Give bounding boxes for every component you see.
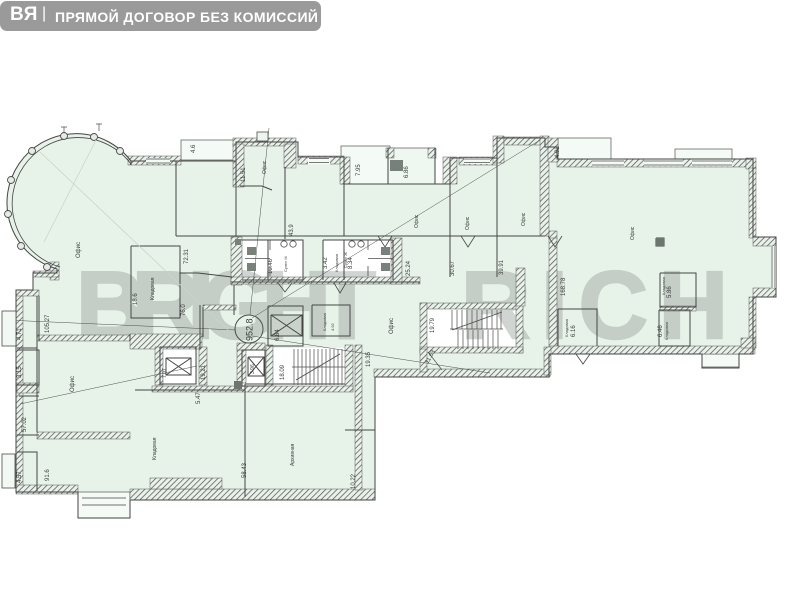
svg-text:25.24: 25.24 [406, 260, 412, 276]
svg-text:19.79: 19.79 [430, 317, 436, 333]
svg-text:4.57: 4.57 [17, 471, 23, 483]
svg-text:Кладовая: Кладовая [661, 277, 666, 295]
svg-text:7.07: 7.07 [162, 368, 168, 378]
svg-text:8.34: 8.34 [348, 257, 354, 269]
svg-text:Кладовая: Кладовая [664, 322, 669, 340]
svg-text:5.47: 5.47 [196, 392, 202, 404]
svg-text:Офис: Офис [389, 318, 395, 334]
svg-text:Офис: Офис [414, 214, 420, 228]
svg-text:3.15: 3.15 [17, 366, 23, 378]
svg-text:11.51: 11.51 [241, 167, 247, 182]
svg-text:4.71: 4.71 [17, 328, 23, 340]
svg-text:43.9: 43.9 [289, 224, 295, 236]
svg-text:Кладовая: Кладовая [334, 254, 339, 272]
svg-text:105.27: 105.27 [45, 314, 51, 333]
svg-text:18.09: 18.09 [280, 364, 286, 380]
svg-text:Кладовая: Кладовая [150, 277, 156, 300]
svg-text:952.8: 952.8 [245, 318, 255, 341]
svg-text:Сузел Ж: Сузел Ж [343, 252, 348, 268]
svg-text:Офис: Офис [76, 242, 82, 258]
svg-text:6.16: 6.16 [571, 325, 577, 337]
svg-text:10.22: 10.22 [351, 473, 357, 489]
svg-text:Офис: Офис [70, 376, 76, 392]
svg-text:76.0: 76.0 [181, 304, 187, 316]
svg-text:91.6: 91.6 [45, 469, 51, 481]
svg-text:Офис: Офис [521, 212, 527, 226]
svg-text:39.91: 39.91 [499, 259, 505, 275]
svg-text:3.42: 3.42 [323, 257, 329, 269]
svg-text:18.6: 18.6 [133, 293, 139, 305]
svg-text:Кладовая: Кладовая [564, 319, 569, 337]
svg-text:6.84: 6.84 [275, 329, 281, 341]
svg-text:19.21: 19.21 [201, 364, 207, 380]
svg-text:3.96: 3.96 [250, 364, 256, 374]
svg-text:Офис: Офис [465, 216, 471, 230]
svg-text:7.95: 7.95 [356, 164, 362, 176]
svg-text:168.78: 168.78 [561, 277, 567, 296]
svg-text:4.92: 4.92 [555, 146, 561, 158]
svg-text:4.6: 4.6 [191, 144, 197, 153]
svg-text:57.02: 57.02 [22, 416, 28, 432]
svg-text:6.86: 6.86 [404, 166, 410, 178]
svg-text:Офис: Офис [630, 226, 636, 240]
svg-text:Офис: Офис [262, 160, 268, 174]
svg-text:4.92: 4.92 [330, 322, 335, 331]
svg-text:19.35: 19.35 [366, 351, 372, 367]
svg-text:58.43: 58.43 [242, 462, 248, 478]
svg-text:10.46: 10.46 [268, 258, 274, 274]
svg-text:Архивная: Архивная [290, 443, 296, 466]
svg-text:Кладовая: Кладовая [152, 437, 158, 460]
svg-text:Кладовая: Кладовая [322, 313, 327, 331]
svg-text:72.31: 72.31 [184, 248, 190, 264]
svg-text:Сузел М: Сузел М [283, 256, 288, 272]
svg-text:30.67: 30.67 [450, 260, 456, 276]
svg-text:5.86: 5.86 [667, 286, 673, 298]
